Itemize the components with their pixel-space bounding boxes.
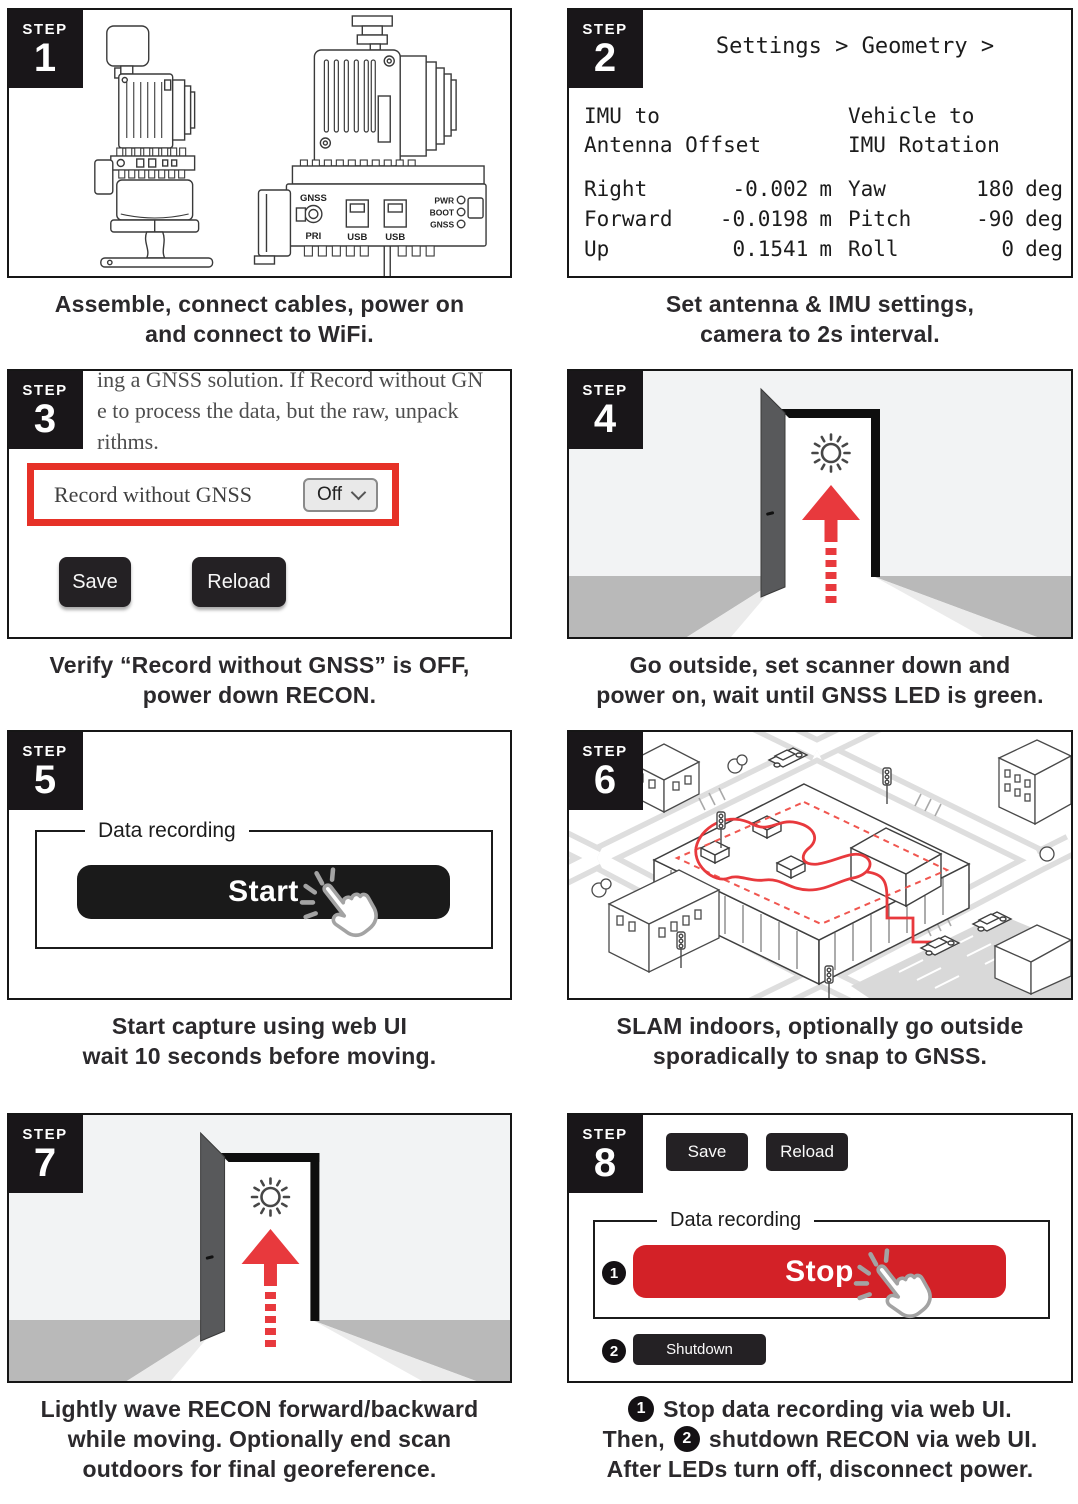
quickstart-grid: STEP1 [0,0,1078,1504]
rotation-row: Yaw180deg [848,174,1063,204]
gnss-led-label: GNSS [430,219,454,229]
rotation-row: Roll0deg [848,234,1063,264]
rotation-row: Pitch-90deg [848,204,1063,234]
step-3-caption: Verify “Record without GNSS” is OFF,powe… [7,650,512,710]
step-6-caption: SLAM indoors, optionally go outsidespora… [567,1011,1073,1071]
scanner-hardware-illustration: GNSS PRI USB USB PWR BOOT GNSS [9,10,510,276]
usb-left-label: USB [347,232,367,243]
reload-button[interactable]: Reload [192,557,286,607]
clipped-help-text: ing a GNSS solution. If Record without G… [97,369,510,457]
step-4-panel: STEP4 [567,369,1073,639]
step-3-cell: ing a GNSS solution. If Record without G… [7,369,512,710]
geometry-settings-screen: Settings > Geometry > IMU toAntenna Offs… [569,10,1071,276]
step-4-cell: STEP4 Go outside, set scanner down andpo… [567,369,1073,710]
step-1-caption: Assemble, connect cables, power onand co… [7,289,512,349]
record-without-gnss-highlight: Record without GNSS Off [27,463,399,526]
step-1-badge: STEP1 [7,8,83,88]
power-button [468,198,483,218]
pwr-led-label: PWR [434,195,454,205]
pri-port-label: PRI [305,231,321,242]
step-1-cell: STEP1 [7,8,512,349]
step-6-badge: STEP6 [567,730,643,810]
pwr-led [457,196,465,204]
start-button[interactable]: Start [77,865,450,919]
click-hand-cursor-icon [297,866,389,948]
save-button[interactable]: Save [666,1133,748,1171]
usb-right-label: USB [385,232,405,243]
record-without-gnss-select[interactable]: Off [303,478,378,512]
step-7-caption: Lightly wave RECON forward/backwardwhile… [7,1394,512,1484]
offset-row: Right-0.002m [584,174,832,204]
step-4-caption: Go outside, set scanner down andpower on… [567,650,1073,710]
boot-led-label: BOOT [430,207,455,217]
step-5-badge: STEP5 [7,730,83,810]
step-7-panel: STEP7 [7,1113,512,1383]
step-8-cell: STEP8 Save Reload Data recording 1 Stop … [567,1113,1073,1484]
step-2-panel: STEP2 Settings > Geometry > IMU toAntenn… [567,8,1073,278]
data-recording-legend: Data recording [85,819,249,843]
imu-antenna-offset-section: IMU toAntenna Offset Right-0.002m Forwar… [584,102,832,264]
stop-button[interactable]: Stop [633,1245,1006,1298]
step-3-panel: ing a GNSS solution. If Record without G… [7,369,512,639]
data-recording-legend: Data recording [657,1209,814,1232]
circled-2-icon: 2 [674,1426,700,1452]
step-2-badge: STEP2 [567,8,643,88]
click-hand-cursor-icon [851,1247,943,1329]
step-6-panel: STEP6 [567,730,1073,1000]
record-without-gnss-label: Record without GNSS [54,482,252,508]
door-exit-illustration [9,1115,510,1381]
gnss-port-label: GNSS [300,193,327,204]
step-4-badge: STEP4 [567,369,643,449]
step-5-caption: Start capture using web UIwait 10 second… [7,1011,512,1071]
circled-1-icon: 1 [628,1396,654,1422]
breadcrumb: Settings > Geometry > [649,34,1061,59]
step-2-cell: STEP2 Settings > Geometry > IMU toAntenn… [567,8,1073,349]
step-8-caption: 1Stop data recording via web UI. Then,2s… [567,1394,1073,1484]
gnss-led [457,220,465,228]
step-1-panel: STEP1 [7,8,512,278]
offset-row: Up0.1541m [584,234,832,264]
step-7-cell: STEP7 Lightly wave RECON forward/backwar… [7,1113,512,1484]
step-7-badge: STEP7 [7,1113,83,1193]
step-8-panel: STEP8 Save Reload Data recording 1 Stop … [567,1113,1073,1383]
city-slam-illustration [569,732,1071,998]
step-6-cell: STEP6 SLAM indoors, optionally go outsid… [567,730,1073,1071]
step-3-badge: STEP3 [7,369,83,449]
offset-row: Forward-0.0198m [584,204,832,234]
step-2-caption: Set antenna & IMU settings,camera to 2s … [567,289,1073,349]
step-5-panel: STEP5 Data recording Start [7,730,512,1000]
door-exit-illustration [569,371,1071,637]
save-button[interactable]: Save [59,557,131,607]
marker-1: 1 [602,1261,626,1285]
reload-button[interactable]: Reload [766,1133,848,1171]
chevron-down-icon [351,485,367,501]
shutdown-button[interactable]: Shutdown [633,1334,766,1365]
step-8-badge: STEP8 [567,1113,643,1193]
vehicle-imu-rotation-section: Vehicle toIMU Rotation Yaw180deg Pitch-9… [848,102,1063,264]
boot-led [457,208,465,216]
marker-2: 2 [602,1339,626,1363]
step-5-cell: STEP5 Data recording Start Start capture… [7,730,512,1071]
